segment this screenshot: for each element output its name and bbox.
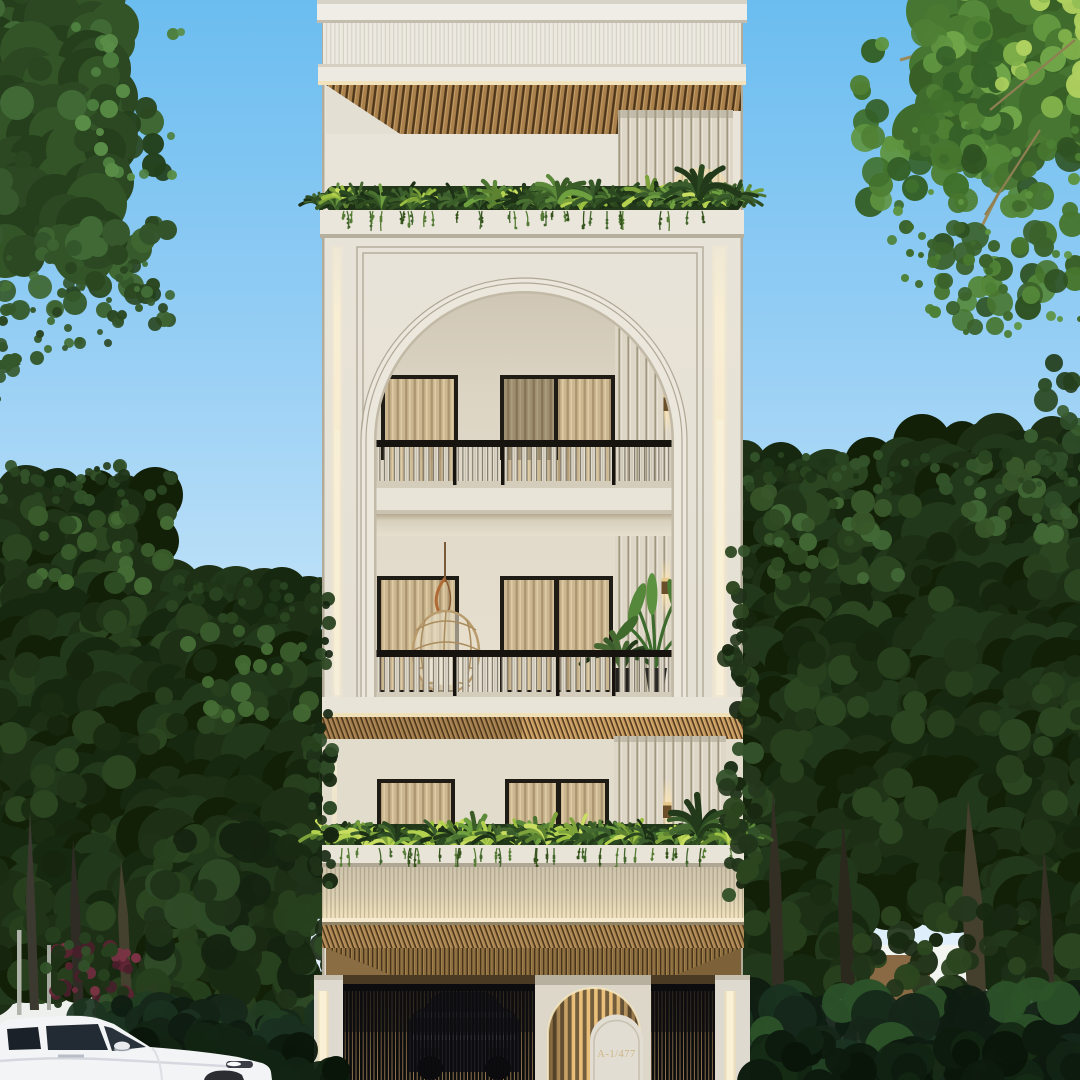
svg-text:A-1/477: A-1/477	[597, 1049, 636, 1060]
